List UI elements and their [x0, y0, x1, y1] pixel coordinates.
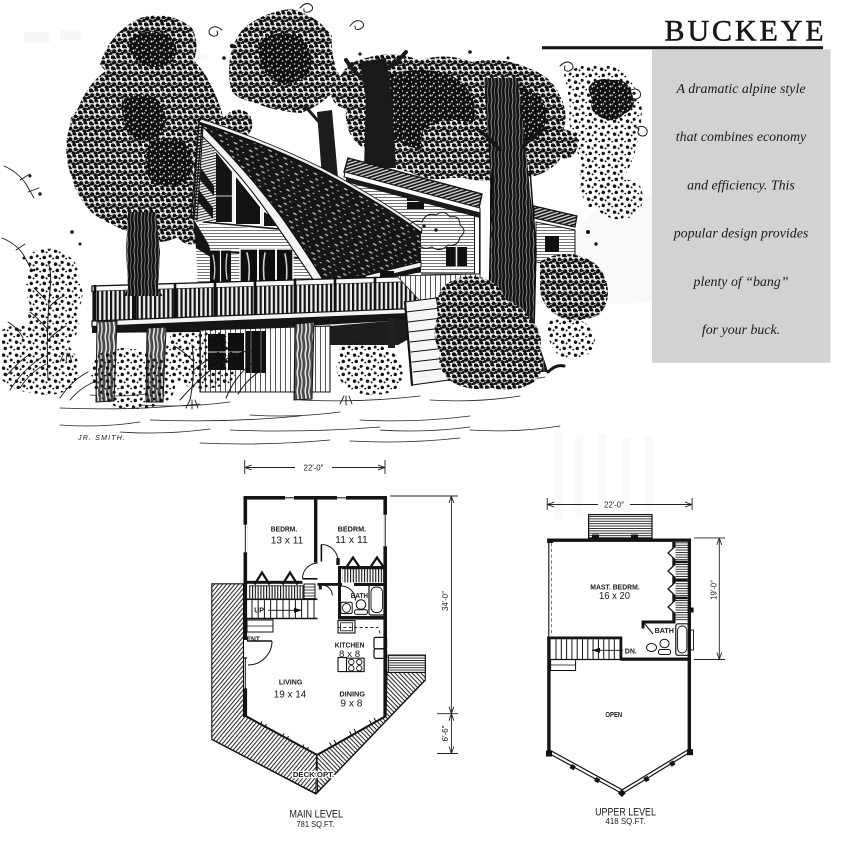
svg-text:418 SQ.FT.: 418 SQ.FT. — [606, 817, 646, 826]
svg-text:A dramatic alpine style: A dramatic alpine style — [676, 82, 806, 97]
svg-text:781 SQ.FT.: 781 SQ.FT. — [297, 820, 335, 829]
svg-text:BEDRM.: BEDRM. — [271, 527, 298, 534]
svg-text:DN.: DN. — [625, 649, 637, 656]
svg-text:11 x 11: 11 x 11 — [335, 535, 368, 546]
svg-text:popular design provides: popular design provides — [673, 227, 809, 242]
svg-text:22′-0″: 22′-0″ — [304, 463, 324, 472]
svg-text:MAIN LEVEL: MAIN LEVEL — [289, 809, 343, 821]
svg-text:DINING: DINING — [339, 691, 365, 698]
svg-text:6′-6″: 6′-6″ — [441, 725, 450, 741]
svg-text:BEDRM.: BEDRM. — [338, 527, 367, 534]
svg-text:for your buck.: for your buck. — [702, 323, 780, 338]
svg-text:OPEN: OPEN — [605, 712, 622, 719]
svg-text:16 x 20: 16 x 20 — [599, 591, 631, 602]
svg-text:JR. SMITH.: JR. SMITH. — [77, 435, 126, 442]
svg-text:13 x 11: 13 x 11 — [271, 536, 304, 547]
svg-text:that combines economy: that combines economy — [676, 130, 807, 145]
svg-text:22′-0″: 22′-0″ — [604, 500, 624, 509]
svg-text:9 x 8: 9 x 8 — [340, 699, 363, 710]
svg-text:BUCKEYE: BUCKEYE — [665, 15, 827, 48]
svg-text:34′-0″: 34′-0″ — [441, 591, 450, 611]
svg-text:BATH: BATH — [655, 628, 674, 635]
svg-text:and efficiency. This: and efficiency. This — [687, 178, 795, 193]
svg-text:DECK OPT.: DECK OPT. — [293, 770, 334, 779]
svg-text:UP: UP — [254, 608, 264, 615]
svg-text:19′-0″: 19′-0″ — [709, 580, 718, 600]
svg-text:plenty of “bang”: plenty of “bang” — [693, 275, 789, 290]
svg-text:LIVING: LIVING — [279, 680, 303, 687]
svg-text:19 x 14: 19 x 14 — [274, 689, 307, 700]
svg-text:BATH: BATH — [351, 593, 368, 600]
svg-text:ENT.: ENT. — [247, 636, 262, 643]
